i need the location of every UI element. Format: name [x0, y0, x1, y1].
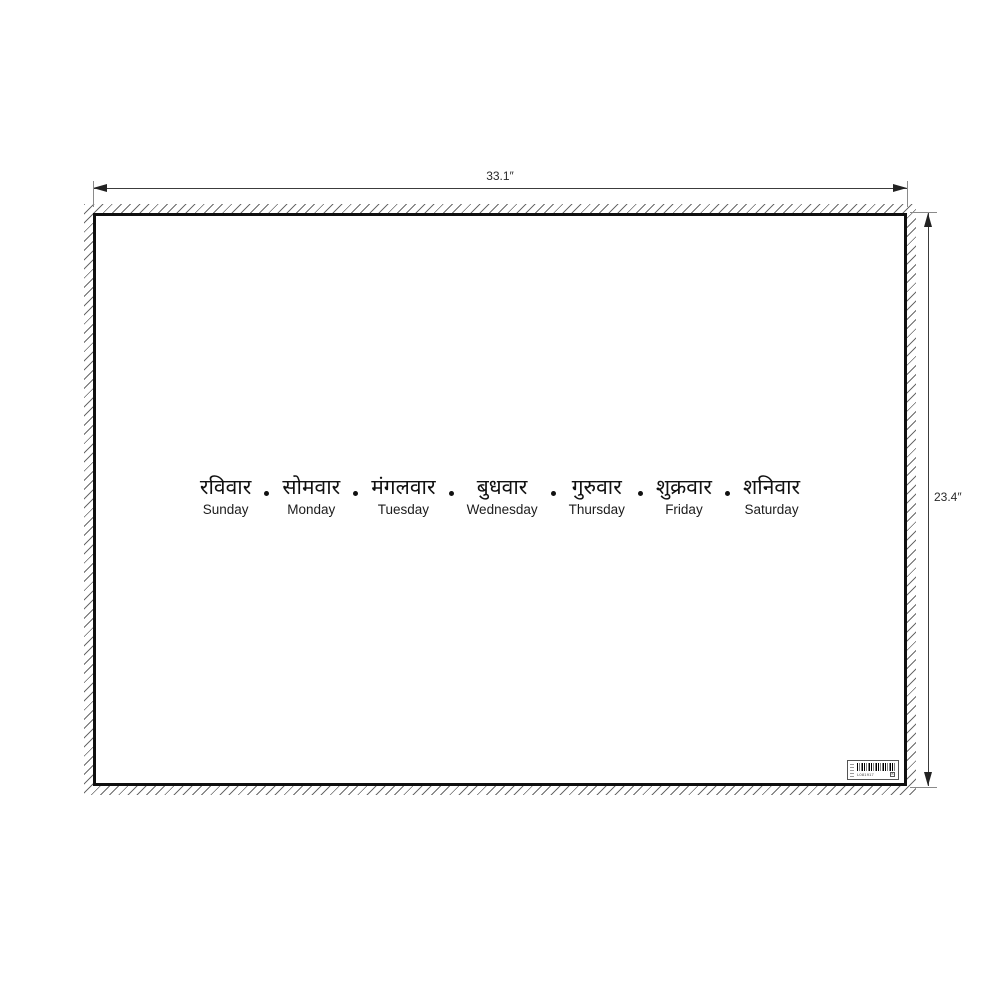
- height-arrow-up-icon: [924, 213, 932, 227]
- weekday-hindi: रविवार: [200, 474, 251, 500]
- height-dimension-label: 23.4″: [934, 490, 962, 504]
- poster-board: रविवार Sunday सोमवार Monday मंगलवार Tues…: [93, 213, 907, 786]
- weekday-english: Wednesday: [467, 502, 538, 518]
- weekday-english: Sunday: [203, 502, 249, 518]
- height-extension-top: [910, 212, 937, 213]
- barcode: [857, 763, 895, 771]
- sticker-info-row: L081917 B: [857, 772, 895, 777]
- height-dimension-line: [928, 213, 929, 786]
- day-separator-dot: [551, 491, 556, 496]
- weekday-hindi: शनिवार: [743, 474, 800, 500]
- width-arrow-right-icon: [893, 184, 907, 192]
- weekday-tuesday: मंगलवार Tuesday: [371, 474, 435, 518]
- sticker-vertical-text: [850, 763, 854, 777]
- day-separator-dot: [725, 491, 730, 496]
- day-separator-dot: [264, 491, 269, 496]
- page: { "dimensions": { "width_label": "33.1″"…: [0, 0, 1000, 1000]
- weekday-english: Thursday: [569, 502, 625, 518]
- weekday-friday: शुक्रवार Friday: [656, 474, 712, 518]
- barcode-sticker: L081917 B: [847, 760, 899, 780]
- width-arrow-left-icon: [93, 184, 107, 192]
- width-extension-left: [93, 181, 94, 207]
- width-dimension-label: 33.1″: [93, 169, 907, 183]
- weekday-hindi: बुधवार: [477, 474, 528, 500]
- weekday-hindi: मंगलवार: [371, 474, 435, 500]
- width-dimension-line: [93, 188, 907, 189]
- weekday-english: Tuesday: [378, 502, 429, 518]
- weekday-english: Monday: [287, 502, 335, 518]
- weekday-wednesday: बुधवार Wednesday: [467, 474, 538, 518]
- height-arrow-down-icon: [924, 772, 932, 786]
- day-separator-dot: [449, 491, 454, 496]
- weekday-english: Friday: [665, 502, 703, 518]
- weekday-english: Saturday: [745, 502, 799, 518]
- width-extension-right: [907, 181, 908, 207]
- weekday-monday: सोमवार Monday: [282, 474, 340, 518]
- sticker-main: L081917 B: [855, 761, 898, 779]
- weekday-hindi: शुक्रवार: [656, 474, 712, 500]
- weekdays-row: रविवार Sunday सोमवार Monday मंगलवार Tues…: [200, 474, 800, 518]
- weekday-hindi: गुरुवार: [572, 474, 622, 500]
- weekday-hindi: सोमवार: [282, 474, 340, 500]
- sticker-grade-box: B: [890, 772, 895, 777]
- day-separator-dot: [638, 491, 643, 496]
- hatch-border: रविवार Sunday सोमवार Monday मंगलवार Tues…: [84, 204, 916, 795]
- weekday-thursday: गुरुवार Thursday: [569, 474, 625, 518]
- weekday-sunday: रविवार Sunday: [200, 474, 251, 518]
- day-separator-dot: [353, 491, 358, 496]
- sticker-code: L081917: [857, 772, 874, 777]
- height-extension-bottom: [910, 787, 937, 788]
- weekday-saturday: शनिवार Saturday: [743, 474, 800, 518]
